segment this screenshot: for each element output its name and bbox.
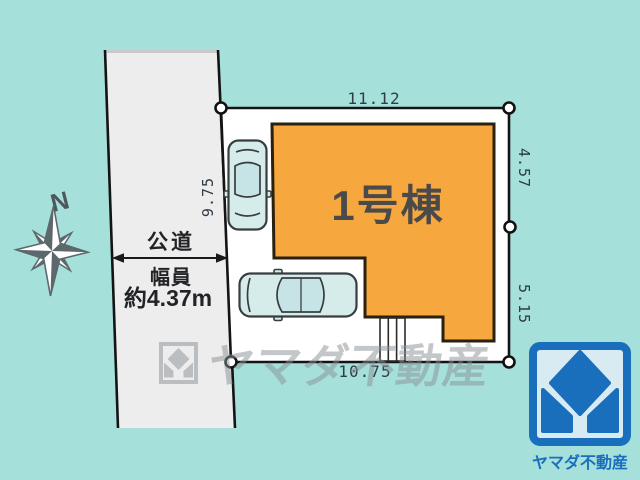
car-cabin: [235, 163, 260, 198]
boundary-point-marker: [504, 103, 515, 114]
watermark-text: ヤマダ不動産: [205, 340, 494, 392]
site-plan-drawing: 11.12 9.75 4.57 5.15 10.75 公道 幅員 約4.37m …: [0, 0, 640, 480]
road-width-value: 約4.37m: [124, 285, 212, 311]
car-top-view-horizontal: [240, 270, 357, 321]
watermark: ヤマダ不動産: [161, 340, 494, 392]
dimension-label-top: 11.12: [347, 89, 400, 108]
brand-logo-icon: [533, 346, 627, 442]
brand-logo-text: ヤマダ不動産: [532, 453, 628, 472]
boundary-point-marker: [216, 103, 227, 114]
boundary-point-marker: [504, 357, 515, 368]
dimension-label-right-lower: 5.15: [515, 284, 533, 324]
boundary-point-marker: [505, 222, 516, 233]
site-plan-page: 11.12 9.75 4.57 5.15 10.75 公道 幅員 約4.37m …: [0, 0, 640, 480]
dimension-label-left: 9.75: [199, 177, 217, 217]
car-top-view-vertical: [224, 141, 271, 230]
building-label: 1号棟: [331, 182, 444, 229]
road-label: 公道: [147, 230, 195, 254]
dimension-label-right-upper: 4.57: [515, 148, 533, 188]
